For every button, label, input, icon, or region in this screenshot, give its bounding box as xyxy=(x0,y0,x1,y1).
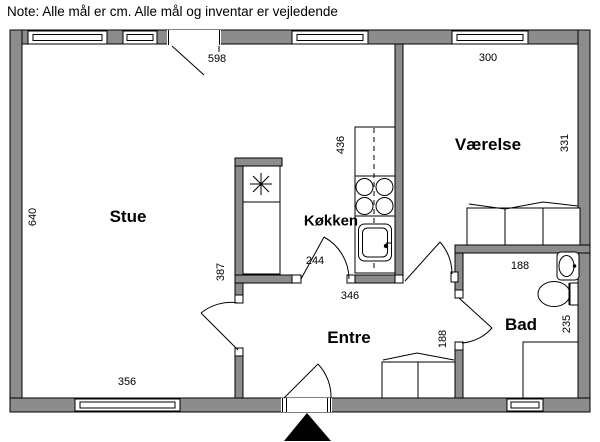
jamb xyxy=(395,275,403,283)
window-stue-top-1 xyxy=(28,31,107,44)
dim-331: 331 xyxy=(559,134,571,152)
dim-244: 244 xyxy=(306,255,324,267)
dim-356: 356 xyxy=(118,376,136,388)
jamb xyxy=(455,342,463,350)
wall-stue-horizontal xyxy=(235,275,292,283)
wall-stue-divider-upper xyxy=(235,158,243,295)
jamb xyxy=(235,295,243,303)
window-stue-bottom xyxy=(75,399,180,411)
room-label-stue: Stue xyxy=(110,207,147,227)
wall-koekken-vaerelse xyxy=(395,44,403,275)
floor-plan: Note: Alle mål er cm. Alle mål og invent… xyxy=(0,0,600,442)
dim-300: 300 xyxy=(479,52,497,64)
terrace-opening xyxy=(167,30,221,45)
windows xyxy=(28,30,543,412)
dim-387: 387 xyxy=(215,263,227,281)
window-koekken-top xyxy=(292,31,368,44)
wall-koekken-bottom xyxy=(355,275,395,283)
leader-598 xyxy=(172,46,204,75)
window-stue-top-2 xyxy=(123,31,157,44)
wardrobe-vaerelse-icon xyxy=(467,202,580,245)
dim-188-entre: 188 xyxy=(437,330,449,348)
dim-640: 640 xyxy=(27,208,39,226)
dim-346: 346 xyxy=(341,290,359,302)
jamb xyxy=(292,275,301,283)
door-entrance xyxy=(284,364,331,398)
floor-plan-drawing xyxy=(0,0,600,442)
dim-188-bad: 188 xyxy=(511,260,529,272)
room-label-bad: Bad xyxy=(505,315,537,335)
wall-entre-bad-lower xyxy=(455,350,463,398)
dim-598: 598 xyxy=(208,53,226,65)
jamb xyxy=(455,290,463,298)
room-label-vaerelse: Værelse xyxy=(455,135,521,155)
entrance-opening xyxy=(281,398,332,412)
shower-icon xyxy=(523,342,578,398)
entrance-arrow-icon xyxy=(284,413,331,441)
door-vaerelse xyxy=(405,242,452,281)
wall-stue-stub xyxy=(235,158,282,166)
freezer-star-icon xyxy=(250,173,272,195)
dim-235: 235 xyxy=(561,315,573,333)
room-label-entre: Entre xyxy=(327,328,370,348)
sink-icon xyxy=(359,224,393,261)
wall-left xyxy=(10,30,22,412)
door-stue-entre xyxy=(201,302,238,350)
door-bad xyxy=(459,298,492,343)
wall-stue-divider-lower xyxy=(235,356,243,398)
jamb xyxy=(235,348,243,356)
dim-436: 436 xyxy=(335,136,347,154)
window-bad xyxy=(507,399,543,411)
wardrobe-entre-icon xyxy=(382,353,455,398)
fridge-icon xyxy=(243,166,280,274)
jamb xyxy=(347,275,355,283)
washbasin-icon xyxy=(557,252,579,280)
window-vaerelse-top xyxy=(452,31,528,44)
toilet-icon xyxy=(538,282,578,307)
room-label-koekken: Køkken xyxy=(304,213,358,230)
kitchen-fixtures xyxy=(243,127,395,274)
